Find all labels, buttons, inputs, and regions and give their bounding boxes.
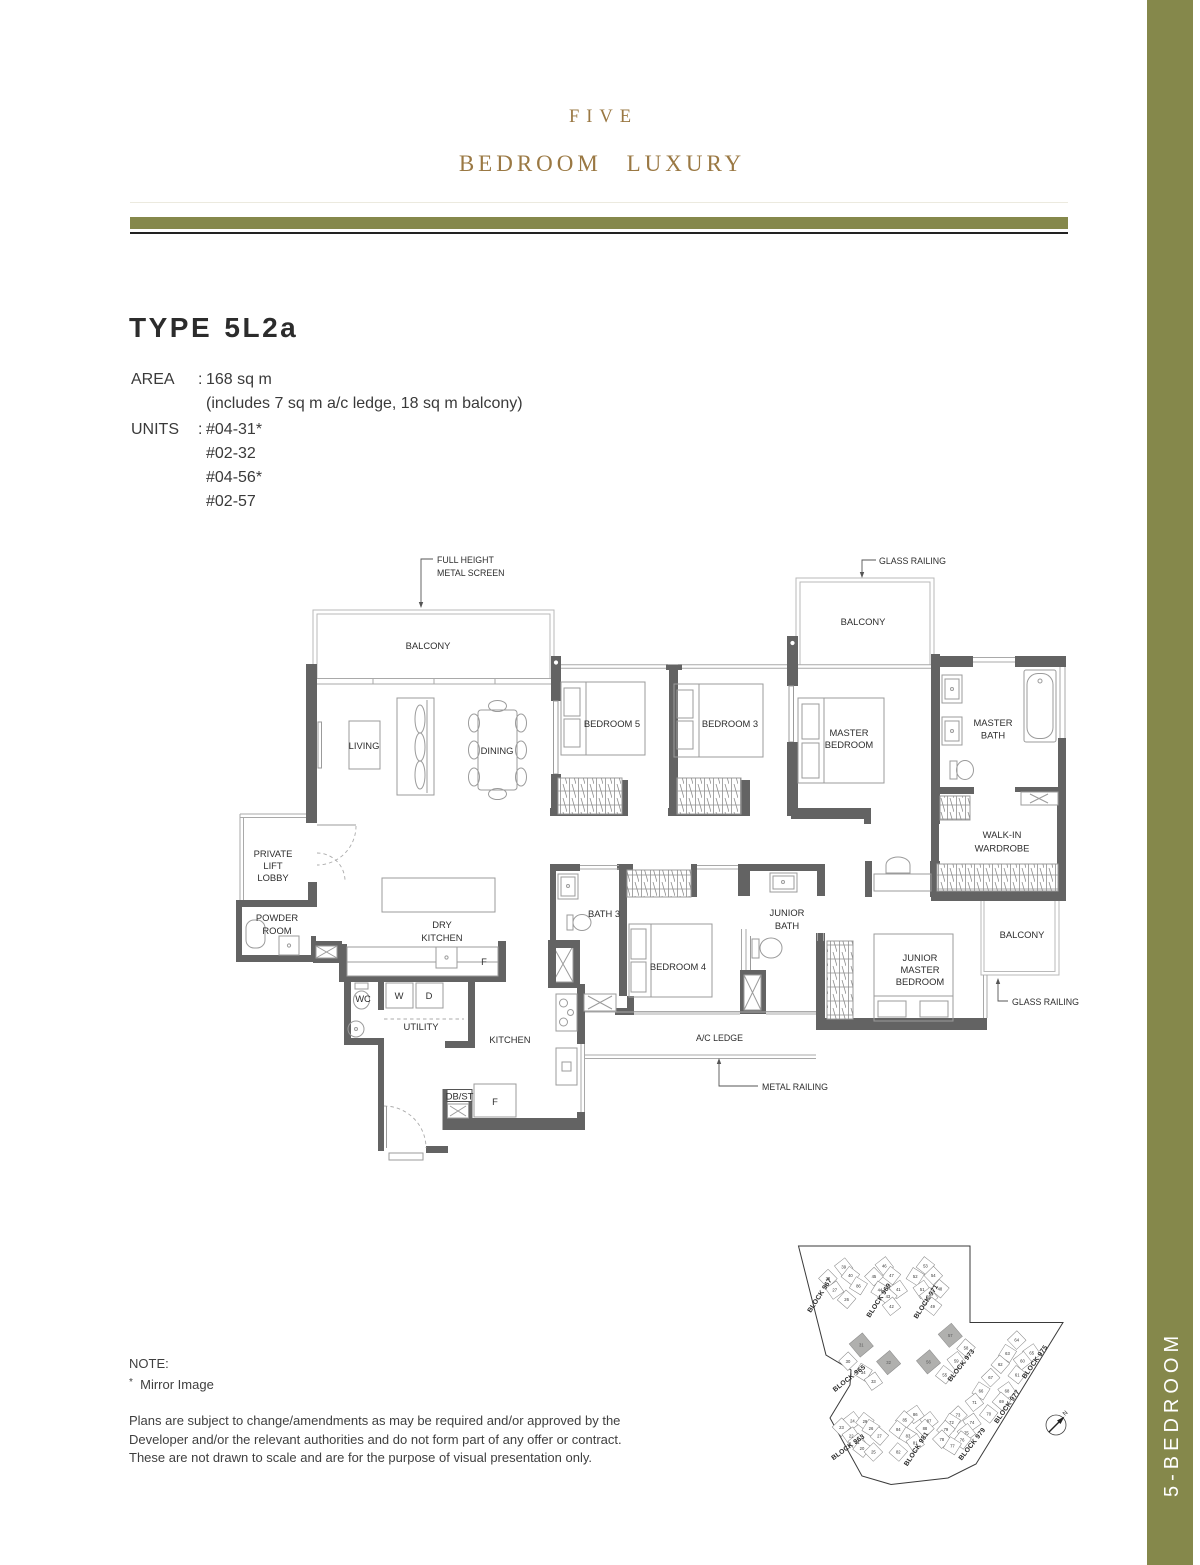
svg-text:46: 46 (882, 1264, 887, 1269)
svg-text:MASTERBATH: MASTERBATH (973, 717, 1012, 741)
svg-text:W: W (395, 990, 404, 1001)
svg-text:41: 41 (896, 1287, 901, 1292)
svg-text:86: 86 (913, 1412, 918, 1417)
svg-text:30: 30 (846, 1359, 851, 1364)
svg-text:56: 56 (926, 1360, 931, 1365)
svg-text:27: 27 (832, 1288, 837, 1293)
svg-text:BLOCK 973: BLOCK 973 (947, 1348, 977, 1383)
svg-text:69: 69 (999, 1399, 1004, 1404)
svg-text:BALCONY: BALCONY (841, 616, 887, 627)
svg-text:39: 39 (841, 1265, 846, 1270)
svg-text:53: 53 (923, 1264, 928, 1269)
svg-text:BALCONY: BALCONY (406, 640, 452, 651)
svg-text:65: 65 (1029, 1351, 1034, 1356)
svg-text:57: 57 (948, 1333, 953, 1338)
svg-text:42: 42 (889, 1304, 894, 1309)
svg-text:71: 71 (972, 1400, 977, 1405)
svg-text:27: 27 (877, 1434, 882, 1439)
svg-text:31: 31 (859, 1343, 864, 1348)
svg-text:45: 45 (872, 1274, 877, 1279)
svg-text:51: 51 (920, 1287, 925, 1292)
svg-text:88: 88 (923, 1426, 928, 1431)
svg-text:47: 47 (889, 1273, 894, 1278)
svg-text:DB/ST: DB/ST (446, 1091, 474, 1102)
svg-text:BEDROOM 4: BEDROOM 4 (650, 961, 706, 972)
svg-text:66: 66 (979, 1389, 984, 1394)
svg-text:WC: WC (355, 993, 371, 1004)
svg-text:23: 23 (839, 1425, 844, 1430)
svg-text:DRYKITCHEN: DRYKITCHEN (421, 919, 462, 943)
svg-text:F: F (481, 956, 487, 967)
svg-text:DINING: DINING (481, 745, 514, 756)
svg-text:FULL HEIGHTMETAL SCREEN: FULL HEIGHTMETAL SCREEN (437, 555, 504, 578)
svg-text:JUNIORBATH: JUNIORBATH (770, 907, 805, 931)
svg-text:BALCONY: BALCONY (1000, 929, 1046, 940)
svg-text:METAL RAILING: METAL RAILING (762, 1082, 828, 1092)
svg-text:A/C LEDGE: A/C LEDGE (696, 1033, 743, 1043)
svg-text:20: 20 (860, 1446, 865, 1451)
svg-text:83: 83 (906, 1434, 911, 1439)
svg-text:24: 24 (850, 1418, 855, 1423)
svg-text:60: 60 (1020, 1358, 1025, 1363)
svg-text:JUNIORMASTERBEDROOM: JUNIORMASTERBEDROOM (896, 952, 945, 987)
svg-text:86: 86 (856, 1283, 861, 1288)
svg-text:32: 32 (886, 1360, 891, 1365)
svg-text:72: 72 (949, 1420, 954, 1425)
svg-text:62: 62 (998, 1362, 1003, 1367)
svg-text:76: 76 (960, 1438, 965, 1443)
svg-text:82: 82 (896, 1450, 901, 1455)
svg-text:75: 75 (964, 1430, 969, 1435)
svg-text:79: 79 (944, 1427, 949, 1432)
svg-text:74: 74 (970, 1420, 975, 1425)
svg-text:D: D (426, 990, 433, 1001)
svg-text:BEDROOM 3: BEDROOM 3 (702, 718, 758, 729)
svg-text:MASTERBEDROOM: MASTERBEDROOM (825, 727, 874, 750)
svg-text:40: 40 (848, 1273, 853, 1278)
svg-text:58: 58 (964, 1346, 969, 1351)
svg-text:BATH 3: BATH 3 (588, 908, 620, 919)
svg-text:KITCHEN: KITCHEN (489, 1034, 530, 1045)
svg-text:61: 61 (1015, 1372, 1020, 1377)
svg-text:84: 84 (896, 1427, 901, 1432)
svg-text:78: 78 (939, 1437, 944, 1442)
svg-text:GLASS RAILING: GLASS RAILING (1012, 997, 1079, 1007)
svg-text:49: 49 (930, 1304, 935, 1309)
svg-text:73: 73 (956, 1413, 961, 1418)
svg-text:F: F (492, 1096, 498, 1107)
svg-text:68: 68 (1005, 1389, 1010, 1394)
svg-text:33: 33 (871, 1379, 876, 1384)
svg-text:22: 22 (849, 1434, 854, 1439)
svg-text:52: 52 (913, 1274, 918, 1279)
svg-text:POWDERROOM: POWDERROOM (256, 912, 298, 936)
svg-text:87: 87 (927, 1418, 932, 1423)
svg-text:63: 63 (1005, 1351, 1010, 1356)
svg-text:GLASS RAILING: GLASS RAILING (879, 556, 946, 566)
svg-text:70: 70 (986, 1412, 991, 1417)
svg-text:WALK-INWARDROBE: WALK-INWARDROBE (975, 829, 1030, 854)
svg-text:25: 25 (871, 1450, 876, 1455)
svg-text:64: 64 (1014, 1338, 1019, 1343)
svg-text:26: 26 (844, 1297, 849, 1302)
svg-text:N: N (1062, 1410, 1069, 1417)
svg-text:PRIVATELIFTLOBBY: PRIVATELIFTLOBBY (254, 848, 293, 883)
svg-text:54: 54 (931, 1273, 936, 1278)
svg-text:77: 77 (950, 1443, 955, 1448)
svg-text:55: 55 (942, 1372, 947, 1377)
svg-text:BEDROOM 5: BEDROOM 5 (584, 718, 640, 729)
svg-text:67: 67 (988, 1375, 993, 1380)
svg-text:LIVING: LIVING (349, 740, 380, 751)
svg-text:85: 85 (902, 1418, 907, 1423)
svg-text:29: 29 (863, 1419, 868, 1424)
svg-text:UTILITY: UTILITY (404, 1021, 440, 1032)
svg-text:26: 26 (869, 1426, 874, 1431)
